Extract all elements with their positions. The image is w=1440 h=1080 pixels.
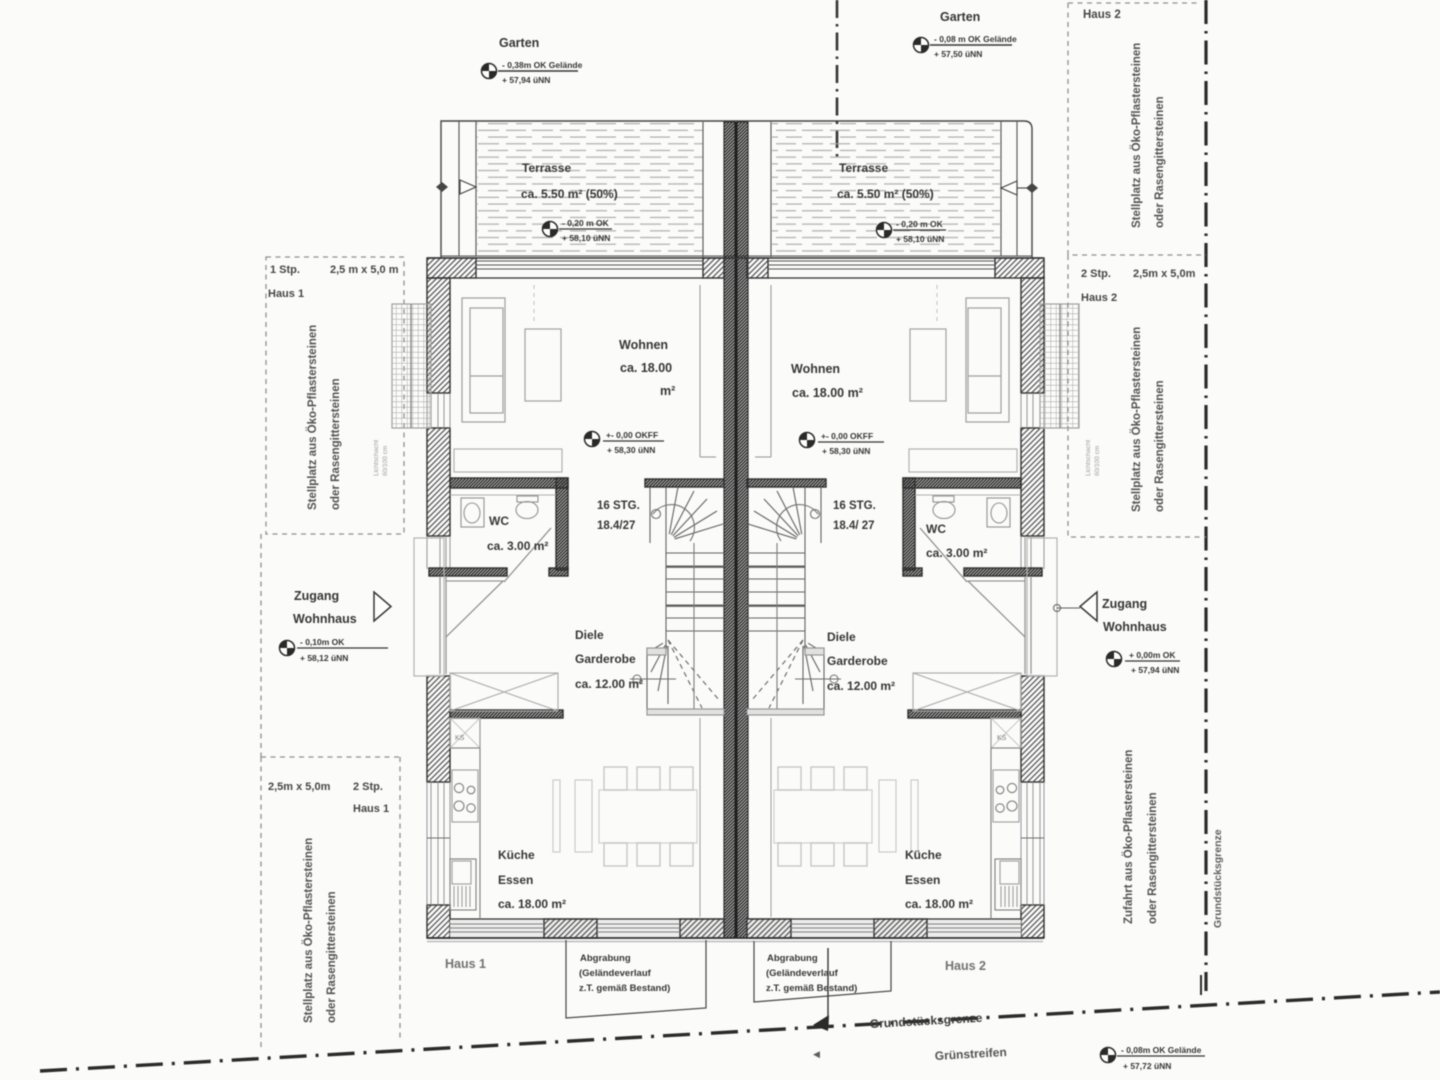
- svg-text:Abgrabung: Abgrabung: [580, 953, 631, 964]
- svg-text:2 Stp.: 2 Stp.: [1081, 268, 1111, 280]
- svg-text:- 0,10m OK: - 0,10m OK: [300, 637, 345, 647]
- svg-text:2,5m x 5,0m: 2,5m x 5,0m: [268, 781, 331, 793]
- svg-text:Stellplatz aus Öko-Pflasterste: Stellplatz aus Öko-Pflastersteinen: [1130, 43, 1143, 228]
- svg-text:- 0,20 m OK: - 0,20 m OK: [896, 219, 944, 229]
- svg-text:+ 57,94 üNN: + 57,94 üNN: [1131, 665, 1179, 675]
- svg-text:+ 58,12 üNN: + 58,12 üNN: [300, 653, 348, 663]
- svg-text:Essen: Essen: [905, 873, 940, 887]
- svg-text:Diele: Diele: [827, 630, 856, 644]
- svg-text:m²: m²: [660, 384, 675, 398]
- svg-text:KS: KS: [997, 735, 1007, 742]
- svg-text:Lichtschacht: Lichtschacht: [1085, 440, 1092, 476]
- svg-text:2,5m x 5,0m: 2,5m x 5,0m: [1133, 268, 1196, 280]
- svg-text:Garten: Garten: [940, 10, 980, 24]
- svg-text:z.T. gemäß Bestand): z.T. gemäß Bestand): [766, 983, 857, 994]
- svg-text:18.4/ 27: 18.4/ 27: [833, 520, 875, 532]
- svg-text:Zufahrt aus Öko-Pflastersteine: Zufahrt aus Öko-Pflastersteinen: [1122, 750, 1135, 924]
- svg-text:+ 58,10 üNN: + 58,10 üNN: [896, 234, 944, 244]
- svg-text:+- 0,00 OKFF: +- 0,00 OKFF: [606, 430, 658, 440]
- svg-text:Zugang: Zugang: [1102, 597, 1147, 611]
- svg-text:+ 0,00m OK: + 0,00m OK: [1129, 650, 1176, 660]
- svg-text:Garten: Garten: [499, 36, 539, 50]
- svg-text:+ 58,30 üNN: + 58,30 üNN: [822, 446, 870, 456]
- svg-text:16 STG.: 16 STG.: [597, 500, 640, 512]
- svg-text:60/100 cm: 60/100 cm: [382, 446, 389, 476]
- svg-text:Wohnhaus: Wohnhaus: [293, 612, 357, 626]
- svg-text:Haus 2: Haus 2: [1081, 292, 1117, 304]
- svg-text:ca. 5.50 m² (50%): ca. 5.50 m² (50%): [521, 187, 618, 201]
- svg-text:ca. 18.00 m²: ca. 18.00 m²: [905, 897, 973, 911]
- svg-text:Essen: Essen: [498, 873, 533, 887]
- svg-text:- 0,20 m OK: - 0,20 m OK: [562, 218, 610, 228]
- svg-text:ca. 12.00 m²: ca. 12.00 m²: [827, 679, 895, 693]
- svg-text:+ 57,94 üNN: + 57,94 üNN: [502, 75, 550, 85]
- svg-text:ca. 3.00 m²: ca. 3.00 m²: [926, 546, 987, 560]
- svg-text:Diele: Diele: [575, 628, 604, 642]
- svg-text:z.T. gemäß Bestand): z.T. gemäß Bestand): [579, 983, 670, 994]
- svg-text:Küche: Küche: [905, 848, 942, 862]
- svg-text:◀: ◀: [813, 1049, 820, 1059]
- svg-text:WC: WC: [926, 522, 946, 536]
- svg-text:Stellplatz aus Öko-Pflasterste: Stellplatz aus Öko-Pflastersteinen: [302, 838, 315, 1023]
- svg-text:1 Stp.: 1 Stp.: [270, 264, 300, 276]
- svg-text:+ 58,10 üNN: + 58,10 üNN: [562, 233, 610, 243]
- svg-text:Grundstücksgrenze: Grundstücksgrenze: [1212, 829, 1224, 928]
- svg-text:Wohnen: Wohnen: [791, 362, 840, 376]
- svg-text:oder Rasengittersteinen: oder Rasengittersteinen: [1147, 792, 1159, 924]
- svg-text:Wohnen: Wohnen: [619, 338, 668, 352]
- svg-text:Haus 1: Haus 1: [445, 957, 486, 971]
- svg-text:Terrasse: Terrasse: [522, 161, 571, 175]
- svg-text:60/100 cm: 60/100 cm: [1094, 446, 1101, 476]
- svg-text:Terrasse: Terrasse: [839, 161, 888, 175]
- svg-text:16 STG.: 16 STG.: [833, 500, 876, 512]
- svg-text:+- 0,00 OKFF: +- 0,00 OKFF: [821, 431, 873, 441]
- svg-text:oder Rasengittersteinen: oder Rasengittersteinen: [1154, 96, 1166, 228]
- svg-text:Haus 2: Haus 2: [945, 959, 986, 973]
- svg-text:ca. 18.00 m²: ca. 18.00 m²: [498, 897, 566, 911]
- svg-text:Haus 1: Haus 1: [353, 803, 389, 815]
- svg-text:Küche: Küche: [498, 848, 535, 862]
- svg-text:Garderobe: Garderobe: [575, 652, 636, 666]
- svg-text:ca. 3.00 m²: ca. 3.00 m²: [487, 539, 548, 553]
- svg-text:Lichtschacht: Lichtschacht: [373, 440, 380, 476]
- svg-text:oder Rasengittersteinen: oder Rasengittersteinen: [326, 891, 338, 1023]
- svg-text:Stellplatz aus Öko-Pflasterste: Stellplatz aus Öko-Pflastersteinen: [306, 325, 319, 510]
- svg-text:(Geländeverlauf: (Geländeverlauf: [579, 968, 652, 979]
- svg-text:oder Rasengittersteinen: oder Rasengittersteinen: [330, 378, 342, 510]
- svg-text:2 Stp.: 2 Stp.: [353, 781, 383, 793]
- svg-text:ca. 12.00 m²: ca. 12.00 m²: [575, 677, 643, 691]
- svg-text:Haus 1: Haus 1: [268, 288, 304, 300]
- svg-text:Wohnhaus: Wohnhaus: [1103, 620, 1167, 634]
- svg-text:Stellplatz aus Öko-Pflasterste: Stellplatz aus Öko-Pflastersteinen: [1130, 327, 1143, 512]
- svg-text:Garderobe: Garderobe: [827, 654, 888, 668]
- svg-text:2,5 m x 5,0 m: 2,5 m x 5,0 m: [330, 264, 399, 276]
- svg-text:- 0,08m OK Gelände: - 0,08m OK Gelände: [1121, 1045, 1202, 1055]
- svg-text:ca. 18.00 m²: ca. 18.00 m²: [792, 386, 863, 400]
- svg-text:Haus 2: Haus 2: [1083, 9, 1121, 21]
- svg-text:+ 58,30 üNN: + 58,30 üNN: [607, 445, 655, 455]
- svg-text:WC: WC: [489, 514, 509, 528]
- svg-text:+ 57,50 üNN: + 57,50 üNN: [934, 49, 982, 59]
- svg-text:18.4/27: 18.4/27: [597, 520, 635, 532]
- svg-text:oder Rasengittersteinen: oder Rasengittersteinen: [1154, 380, 1166, 512]
- svg-text:ca. 18.00: ca. 18.00: [620, 361, 672, 375]
- svg-text:- 0,38m OK Gelände: - 0,38m OK Gelände: [502, 60, 583, 70]
- svg-text:KS: KS: [455, 735, 465, 742]
- svg-text:ca. 5.50 m² (50%): ca. 5.50 m² (50%): [837, 187, 934, 201]
- svg-text:Zugang: Zugang: [294, 589, 339, 603]
- svg-text:Abgrabung: Abgrabung: [767, 953, 818, 964]
- svg-text:+ 57,72 üNN: + 57,72 üNN: [1123, 1061, 1171, 1071]
- svg-text:- 0,08 m OK Gelände: - 0,08 m OK Gelände: [934, 34, 1017, 44]
